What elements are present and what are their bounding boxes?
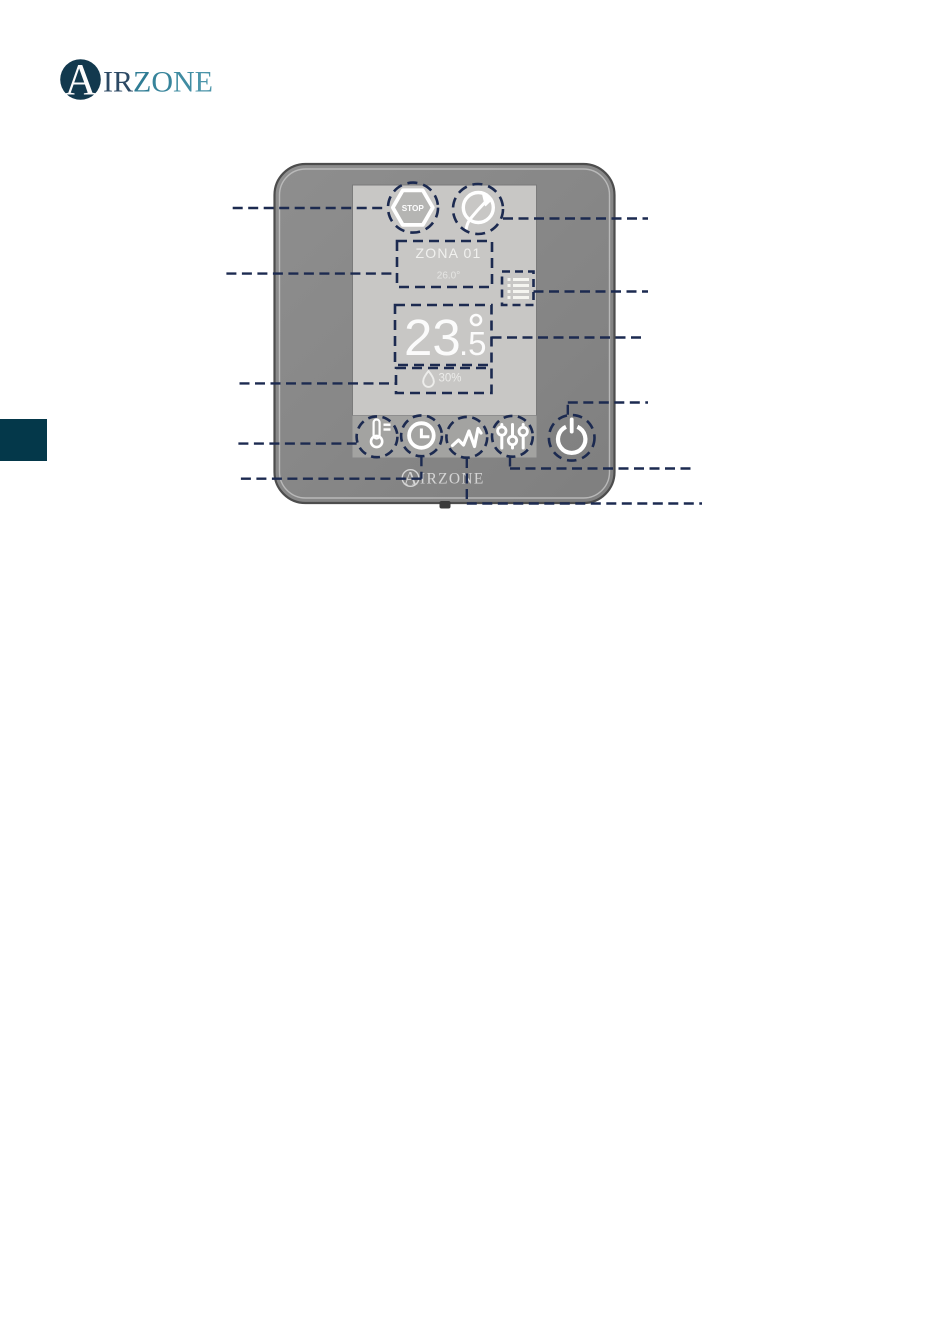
svg-text:ZONA 01: ZONA 01	[416, 245, 482, 261]
svg-text:A: A	[65, 55, 97, 104]
svg-text:.5: .5	[459, 325, 487, 362]
svg-text:26.0°: 26.0°	[437, 271, 460, 282]
svg-text:IRZONE: IRZONE	[420, 471, 485, 488]
svg-text:23: 23	[404, 309, 461, 366]
svg-text:IRZONE: IRZONE	[103, 66, 213, 99]
svg-text:STOP: STOP	[402, 204, 425, 213]
svg-text:30%: 30%	[439, 373, 462, 385]
